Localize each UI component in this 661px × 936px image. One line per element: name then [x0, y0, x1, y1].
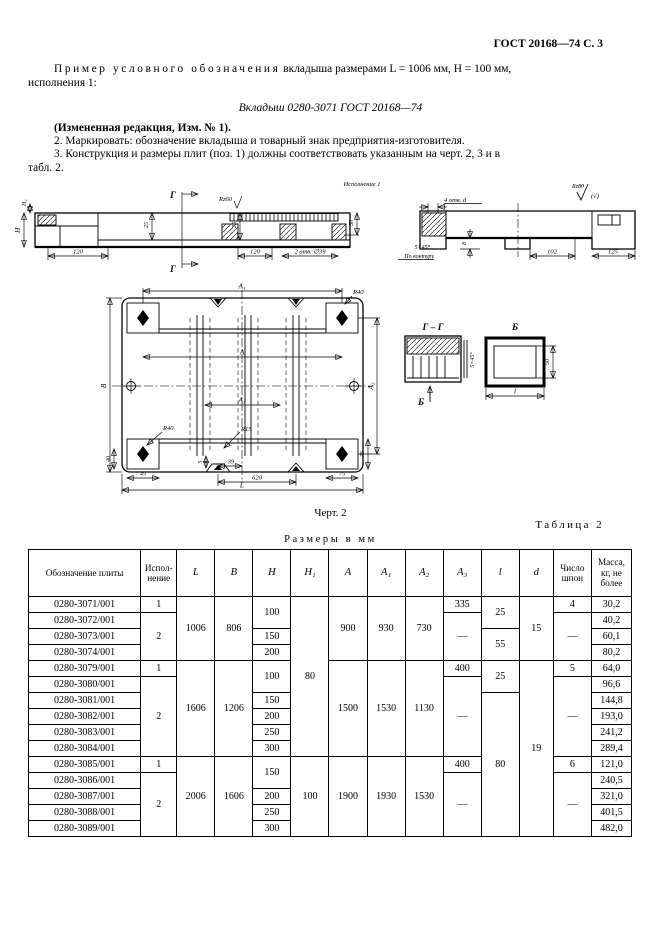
radius-R15: R15 — [240, 426, 252, 433]
table-cell: 15 — [519, 597, 553, 661]
dim-5: 5 — [198, 461, 204, 464]
table-cell: 2 — [141, 773, 177, 837]
table-cell: 25 — [481, 597, 519, 629]
table-cell: — — [553, 773, 591, 837]
table-cell: 1530 — [405, 757, 443, 837]
table-cell: 289,4 — [591, 741, 631, 757]
table-cell: 2 — [141, 677, 177, 757]
detail-b-dim-50: 50 — [545, 359, 551, 365]
clause-3-line2: табл. 2. — [28, 162, 64, 174]
example-lead: Пример условного обозначения — [54, 63, 280, 75]
roughness2-label: Rz80 — [571, 184, 584, 190]
dim-25a: 25 — [144, 222, 150, 228]
table-cell: 100 — [253, 661, 291, 693]
table-cell: 80,2 — [591, 645, 631, 661]
table-cell: 0280-3087/001 — [29, 789, 141, 805]
chamfer-note: 5×45° — [415, 244, 431, 251]
table-cell: 240,5 — [591, 773, 631, 789]
dim-A3: A₃ — [237, 396, 246, 405]
dim-25b: 25 — [232, 222, 238, 228]
table-cell: 55 — [481, 629, 519, 661]
detail-gg-title: Г – Г — [422, 323, 444, 333]
table-cell: 1500 — [329, 661, 367, 757]
table-cell: 150 — [253, 629, 291, 645]
clause-3: 3. Конструкция и размеры плит (поз. 1) д… — [28, 148, 634, 175]
dim-A: A — [239, 348, 245, 357]
table-cell: 200 — [253, 789, 291, 805]
table-cell: 400 — [443, 661, 481, 677]
table-cell: 6 — [553, 757, 591, 773]
dim-A1: A₁ — [237, 282, 246, 291]
dim-120a: 120 — [73, 249, 84, 256]
designation-line: Вкладыш 0280-3071 ГОСТ 20168—74 — [0, 102, 661, 114]
plate-plan-outline — [122, 298, 363, 472]
t-slots — [159, 315, 326, 456]
corner-hole — [137, 446, 149, 462]
table-cell: 0280-3074/001 — [29, 645, 141, 661]
plan-view: A₁ R40 B A₂ A A₃ L 620 40 45 5 — [99, 282, 380, 495]
dim-75b: 75 — [360, 451, 366, 457]
table-cell: — — [443, 773, 481, 837]
clause-3-line1: 3. Конструкция и размеры плит (поз. 1) д… — [54, 148, 500, 160]
table-cell: 1930 — [367, 757, 405, 837]
dim-125: 125 — [608, 249, 619, 256]
table-cell: 19 — [519, 661, 553, 837]
drawing-figure-2: Исполнение 1 Г Г Rz60 H — [15, 175, 645, 507]
table-cell: 30,2 — [591, 597, 631, 613]
column-header: A₁ — [367, 550, 405, 597]
column-header: l — [481, 550, 519, 597]
table-cell: 321,0 — [591, 789, 631, 805]
section-view-right: 4 отв. d Rz80 (√) 8 102 125 5×45° По кон… — [398, 184, 635, 260]
table-row: 0280-3071/001110068061008090093073033525… — [29, 597, 632, 613]
detail-view-b: Б 50 l — [486, 323, 556, 400]
detail-b-dim-l: l — [514, 387, 516, 396]
table-cell: 0280-3086/001 — [29, 773, 141, 789]
table-cell: 96,6 — [591, 677, 631, 693]
table-cell: 60,1 — [591, 629, 631, 645]
dim-39: 39 — [227, 460, 234, 466]
holes-label-right: 4 отв. d — [444, 197, 467, 204]
column-header: Число шпон — [553, 550, 591, 597]
example-paragraph: Пример условного обозначения вкладыша ра… — [28, 62, 634, 90]
dim-A2: A₂ — [366, 382, 375, 391]
table-cell: 930 — [367, 597, 405, 661]
variant-label: Исполнение 1 — [342, 181, 380, 188]
figure-caption: Черт. 2 — [0, 507, 661, 519]
column-header: A₂ — [405, 550, 443, 597]
column-header: L — [177, 550, 215, 597]
dim-75a: 75 — [339, 472, 345, 478]
table-cell: 40,2 — [591, 613, 631, 629]
table-cell: 25 — [481, 661, 519, 693]
table-cell: 0280-3089/001 — [29, 821, 141, 837]
example-line2: исполнения 1: — [28, 77, 97, 89]
table-cell: 0280-3088/001 — [29, 805, 141, 821]
table-cell: 482,0 — [591, 821, 631, 837]
radius-R40-top: R40 — [352, 289, 364, 296]
roughness-label: Rz60 — [218, 196, 233, 203]
table-cell: 1 — [141, 757, 177, 773]
table-cell: 0280-3083/001 — [29, 725, 141, 741]
table-cell: — — [553, 613, 591, 661]
table-cell: 401,5 — [591, 805, 631, 821]
table-row: 0280-3079/001116061206100150015301130400… — [29, 661, 632, 677]
corner-hole — [336, 310, 348, 326]
table-cell: 150 — [253, 757, 291, 789]
table-cell: 100 — [253, 597, 291, 629]
dimensions-table-wrap: Обозначение плитыИспол-нениеLBHH₁AA₁A₂A₃… — [28, 549, 632, 837]
corner-hole — [137, 310, 149, 326]
table-cell: — — [443, 677, 481, 757]
table-label: Таблица 2 — [535, 519, 604, 531]
table-cell: 0280-3072/001 — [29, 613, 141, 629]
table-cell: 1 — [141, 661, 177, 677]
table-cell: 2006 — [177, 757, 215, 837]
column-header: Масса, кг, не более — [591, 550, 631, 597]
table-cell: 200 — [253, 645, 291, 661]
table-cell: 250 — [253, 805, 291, 821]
dim-40: 40 — [105, 456, 112, 462]
table-cell: 1206 — [215, 661, 253, 757]
table-cell: 150 — [253, 693, 291, 709]
table-cell: 1606 — [215, 757, 253, 837]
table-cell: 100 — [291, 757, 329, 837]
clause-2: 2. Маркировать: обозначение вкладыша и т… — [54, 135, 465, 147]
cut-label-bottom: Г — [169, 265, 176, 275]
column-header: H — [253, 550, 291, 597]
table-cell: 0280-3082/001 — [29, 709, 141, 725]
detail-section-gg: Г – Г 5×45° Б — [405, 323, 476, 408]
table-cell: 300 — [253, 821, 291, 837]
dim-50: 50 — [349, 220, 355, 226]
detail-gg-b-arrow: Б — [417, 398, 424, 408]
page-header: ГОСТ 20168—74 С. 3 — [494, 38, 603, 50]
table-cell: — — [443, 613, 481, 661]
table-cell: 0280-3071/001 — [29, 597, 141, 613]
detail-gg-chamfer: 5×45° — [469, 352, 476, 368]
table-cell: 0280-3084/001 — [29, 741, 141, 757]
dim-B: B — [99, 383, 108, 388]
document-page: ГОСТ 20168—74 С. 3 Пример условного обоз… — [0, 0, 661, 936]
table-cell: 193,0 — [591, 709, 631, 725]
table-cell: 1130 — [405, 661, 443, 757]
table-cell: 250 — [253, 725, 291, 741]
table-cell: 4 — [553, 597, 591, 613]
table-cell: 730 — [405, 597, 443, 661]
table-cell: 144,8 — [591, 693, 631, 709]
dim-45: 45 — [140, 471, 146, 478]
contour-note: По контуру — [403, 254, 434, 260]
table-cell: 1606 — [177, 661, 215, 757]
cut-label-top: Г — [169, 191, 176, 201]
table-cell: 400 — [443, 757, 481, 773]
surface-mark: (√) — [591, 192, 599, 200]
column-header: A₃ — [443, 550, 481, 597]
table-cell: 2 — [141, 613, 177, 661]
corner-hole — [336, 446, 348, 462]
holes-label-left: 2 отв. ∅39 — [294, 249, 326, 256]
table-cell: 335 — [443, 597, 481, 613]
table-cell: 300 — [253, 741, 291, 757]
knurl-strip — [230, 214, 338, 222]
table-units-note: Размеры в мм — [0, 534, 661, 545]
table-cell: 1006 — [177, 597, 215, 661]
example-rest: вкладыша размерами L = 1006 мм, Н = 100 … — [280, 63, 511, 75]
dim-H: H — [15, 227, 22, 234]
table-cell: 200 — [253, 709, 291, 725]
column-header: Обозначение плиты — [29, 550, 141, 597]
table-cell: 0280-3079/001 — [29, 661, 141, 677]
column-header: A — [329, 550, 367, 597]
radius-R40-bottom: R40 — [162, 425, 174, 432]
table-cell: 1900 — [329, 757, 367, 837]
plate-outline-2 — [420, 211, 635, 249]
dimensions-table: Обозначение плитыИспол-нениеLBHH₁AA₁A₂A₃… — [28, 549, 632, 837]
dim-H2: H₂ — [22, 200, 28, 207]
table-cell: 1530 — [367, 661, 405, 757]
column-header: d — [519, 550, 553, 597]
table-cell: 0280-3073/001 — [29, 629, 141, 645]
table-cell: 121,0 — [591, 757, 631, 773]
table-cell: 900 — [329, 597, 367, 661]
table-cell: 1 — [141, 597, 177, 613]
table-cell: 241,2 — [591, 725, 631, 741]
dim-102: 102 — [547, 249, 558, 256]
section-view-left: Г Г Rz60 H H₂ 25 25 50 120 120 — [15, 191, 359, 275]
detail-b-title: Б — [511, 323, 518, 333]
table-cell: 80 — [481, 693, 519, 837]
table-cell: 5 — [553, 661, 591, 677]
column-header: B — [215, 550, 253, 597]
table-cell: 0280-3085/001 — [29, 757, 141, 773]
table-cell: 80 — [291, 597, 329, 757]
dim-620: 620 — [252, 475, 263, 482]
table-cell: 0280-3080/001 — [29, 677, 141, 693]
table-cell: 64,0 — [591, 661, 631, 677]
table-cell: 806 — [215, 597, 253, 661]
table-cell: — — [553, 677, 591, 757]
amended-note: (Измененная редакция, Изм. № 1). — [54, 122, 231, 134]
table-cell: 0280-3081/001 — [29, 693, 141, 709]
dim-8: 8 — [462, 242, 468, 245]
dim-120b: 120 — [250, 249, 261, 256]
column-header: Испол-нение — [141, 550, 177, 597]
column-header: H₁ — [291, 550, 329, 597]
